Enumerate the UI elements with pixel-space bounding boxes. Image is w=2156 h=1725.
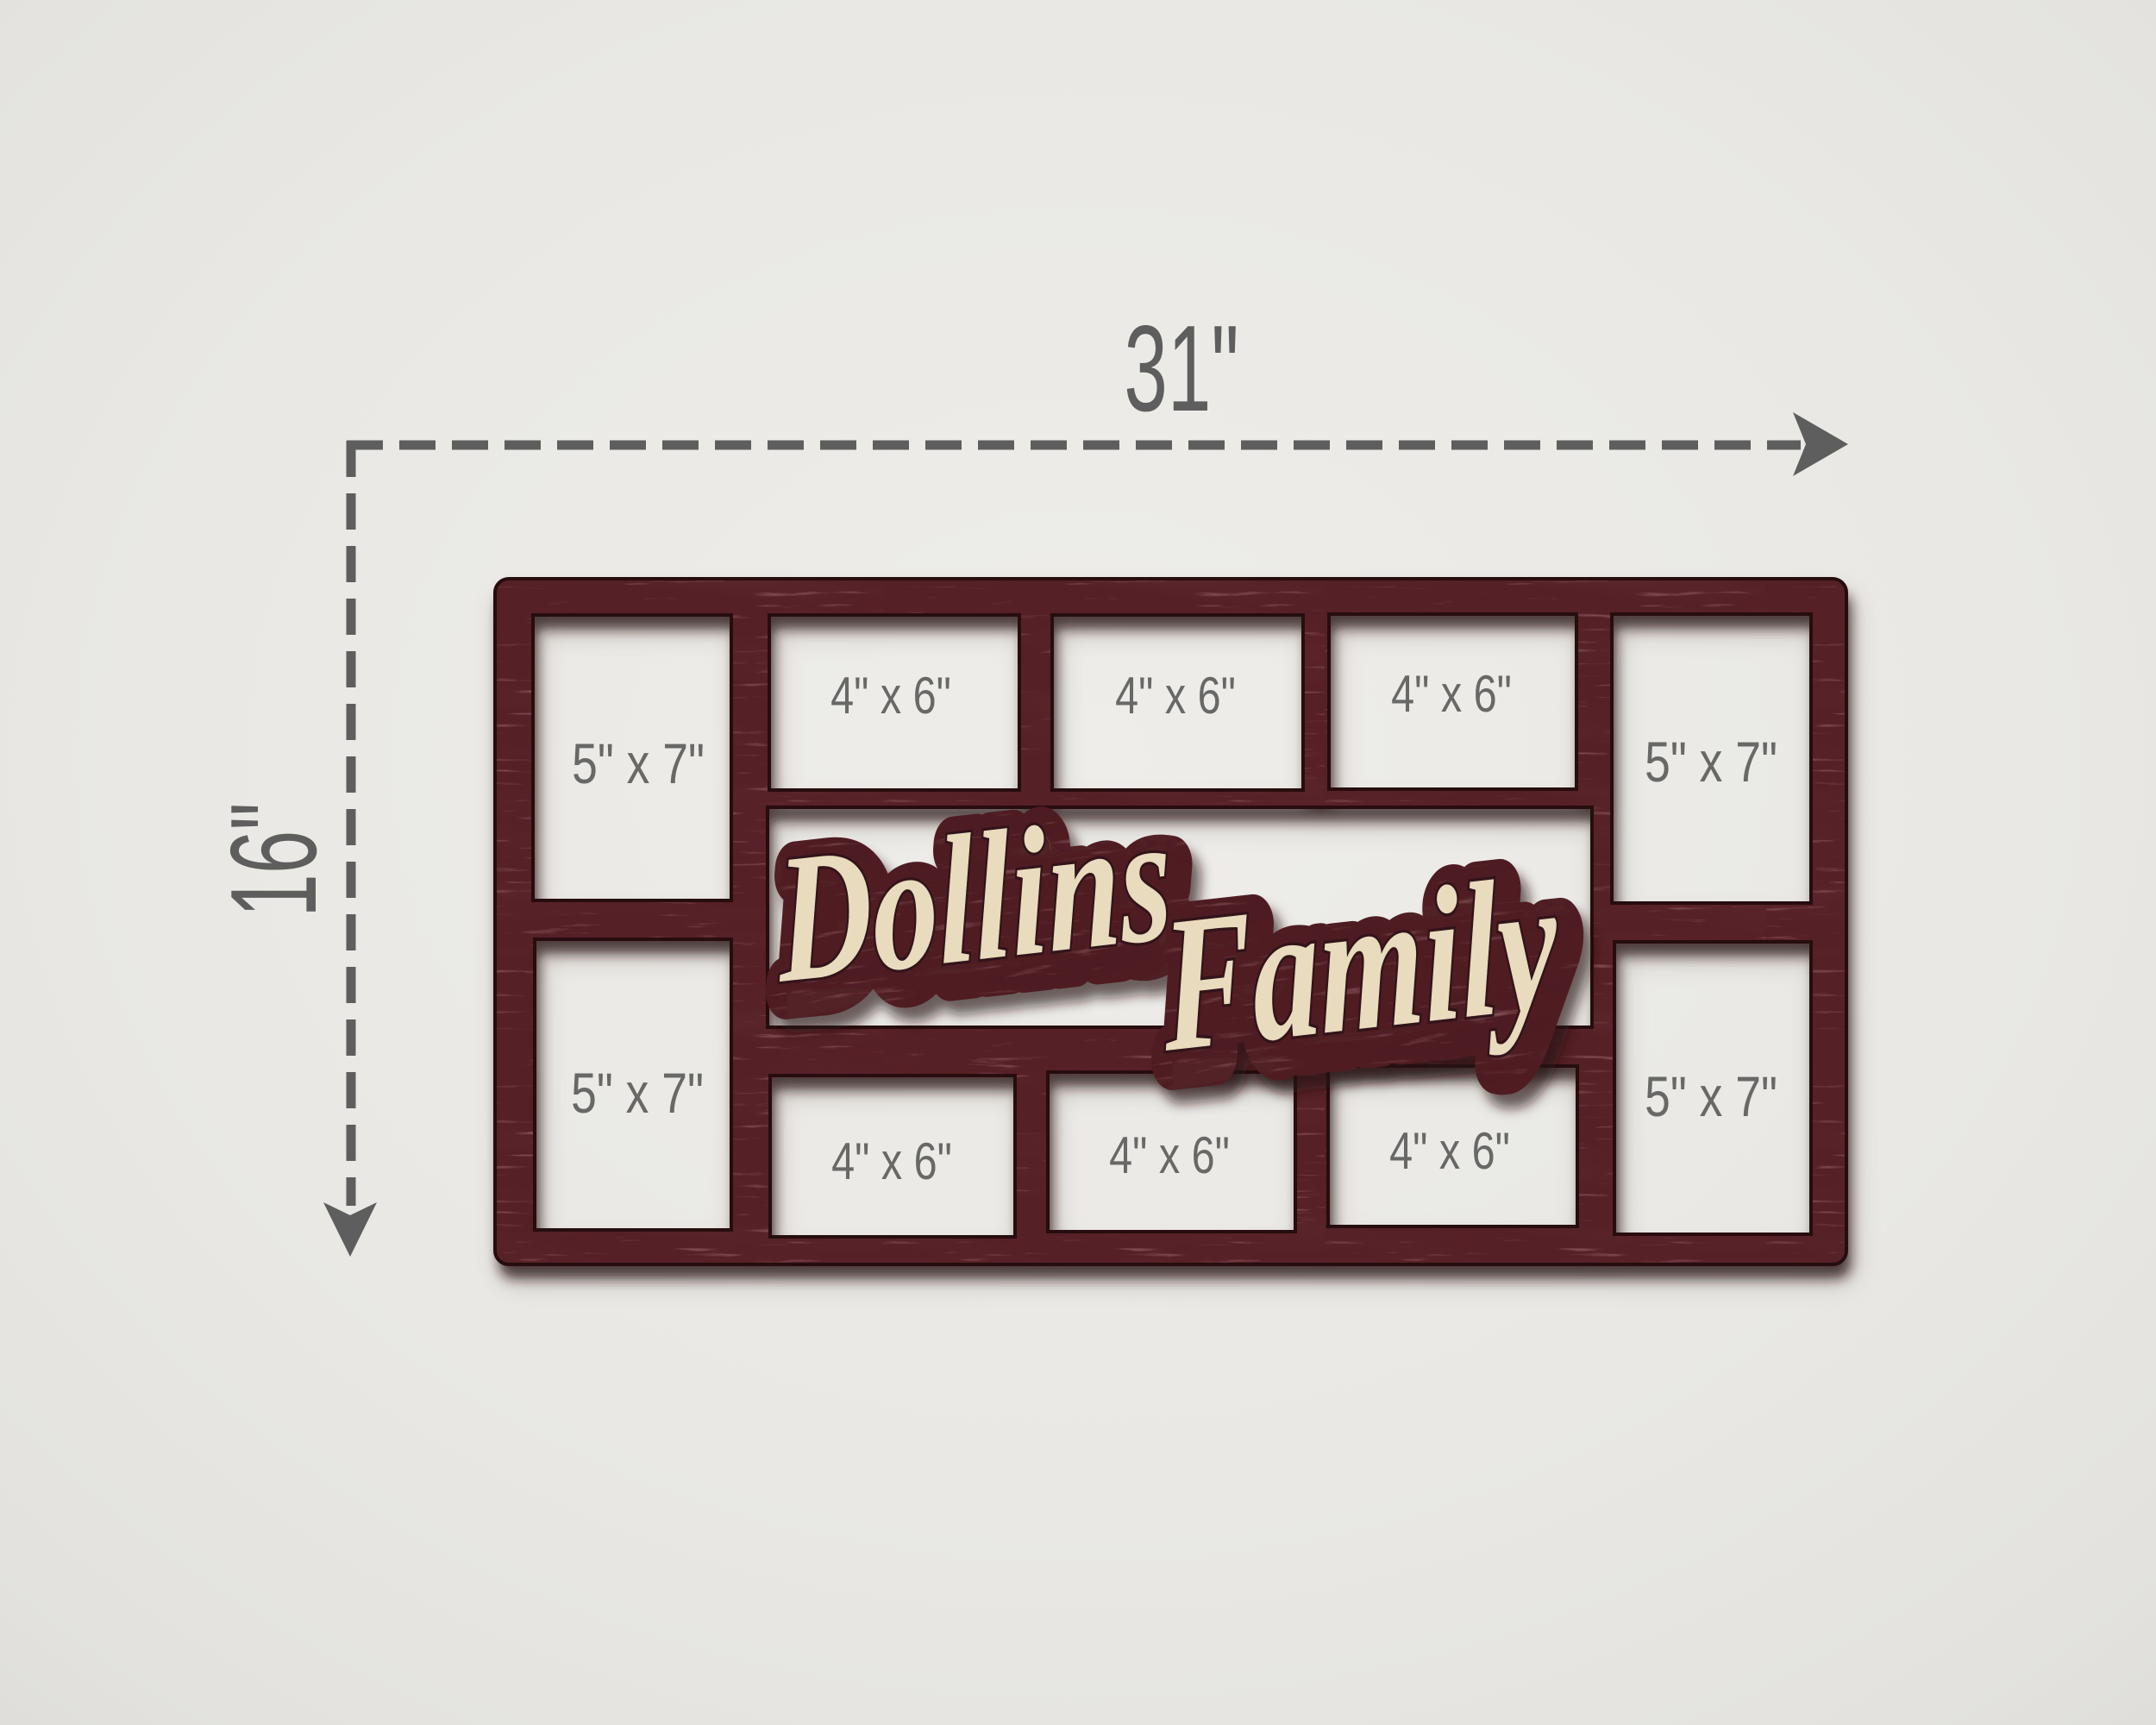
svg-text:5" x 7": 5" x 7" [1645,1065,1777,1129]
svg-text:Family: Family [1156,834,1564,1092]
svg-text:5" x 7": 5" x 7" [1645,731,1777,794]
svg-text:16": 16" [206,802,342,917]
svg-text:4" x 6": 4" x 6" [1391,665,1512,723]
svg-text:4" x 6": 4" x 6" [831,1132,952,1190]
svg-text:4" x 6": 4" x 6" [1115,667,1236,724]
svg-text:5" x 7": 5" x 7" [572,732,705,796]
svg-text:5" x 7": 5" x 7" [571,1062,704,1126]
svg-text:4" x 6": 4" x 6" [1109,1126,1230,1184]
svg-text:31": 31" [1124,301,1238,437]
svg-text:4" x 6": 4" x 6" [830,667,951,724]
svg-text:4" x 6": 4" x 6" [1389,1122,1510,1180]
